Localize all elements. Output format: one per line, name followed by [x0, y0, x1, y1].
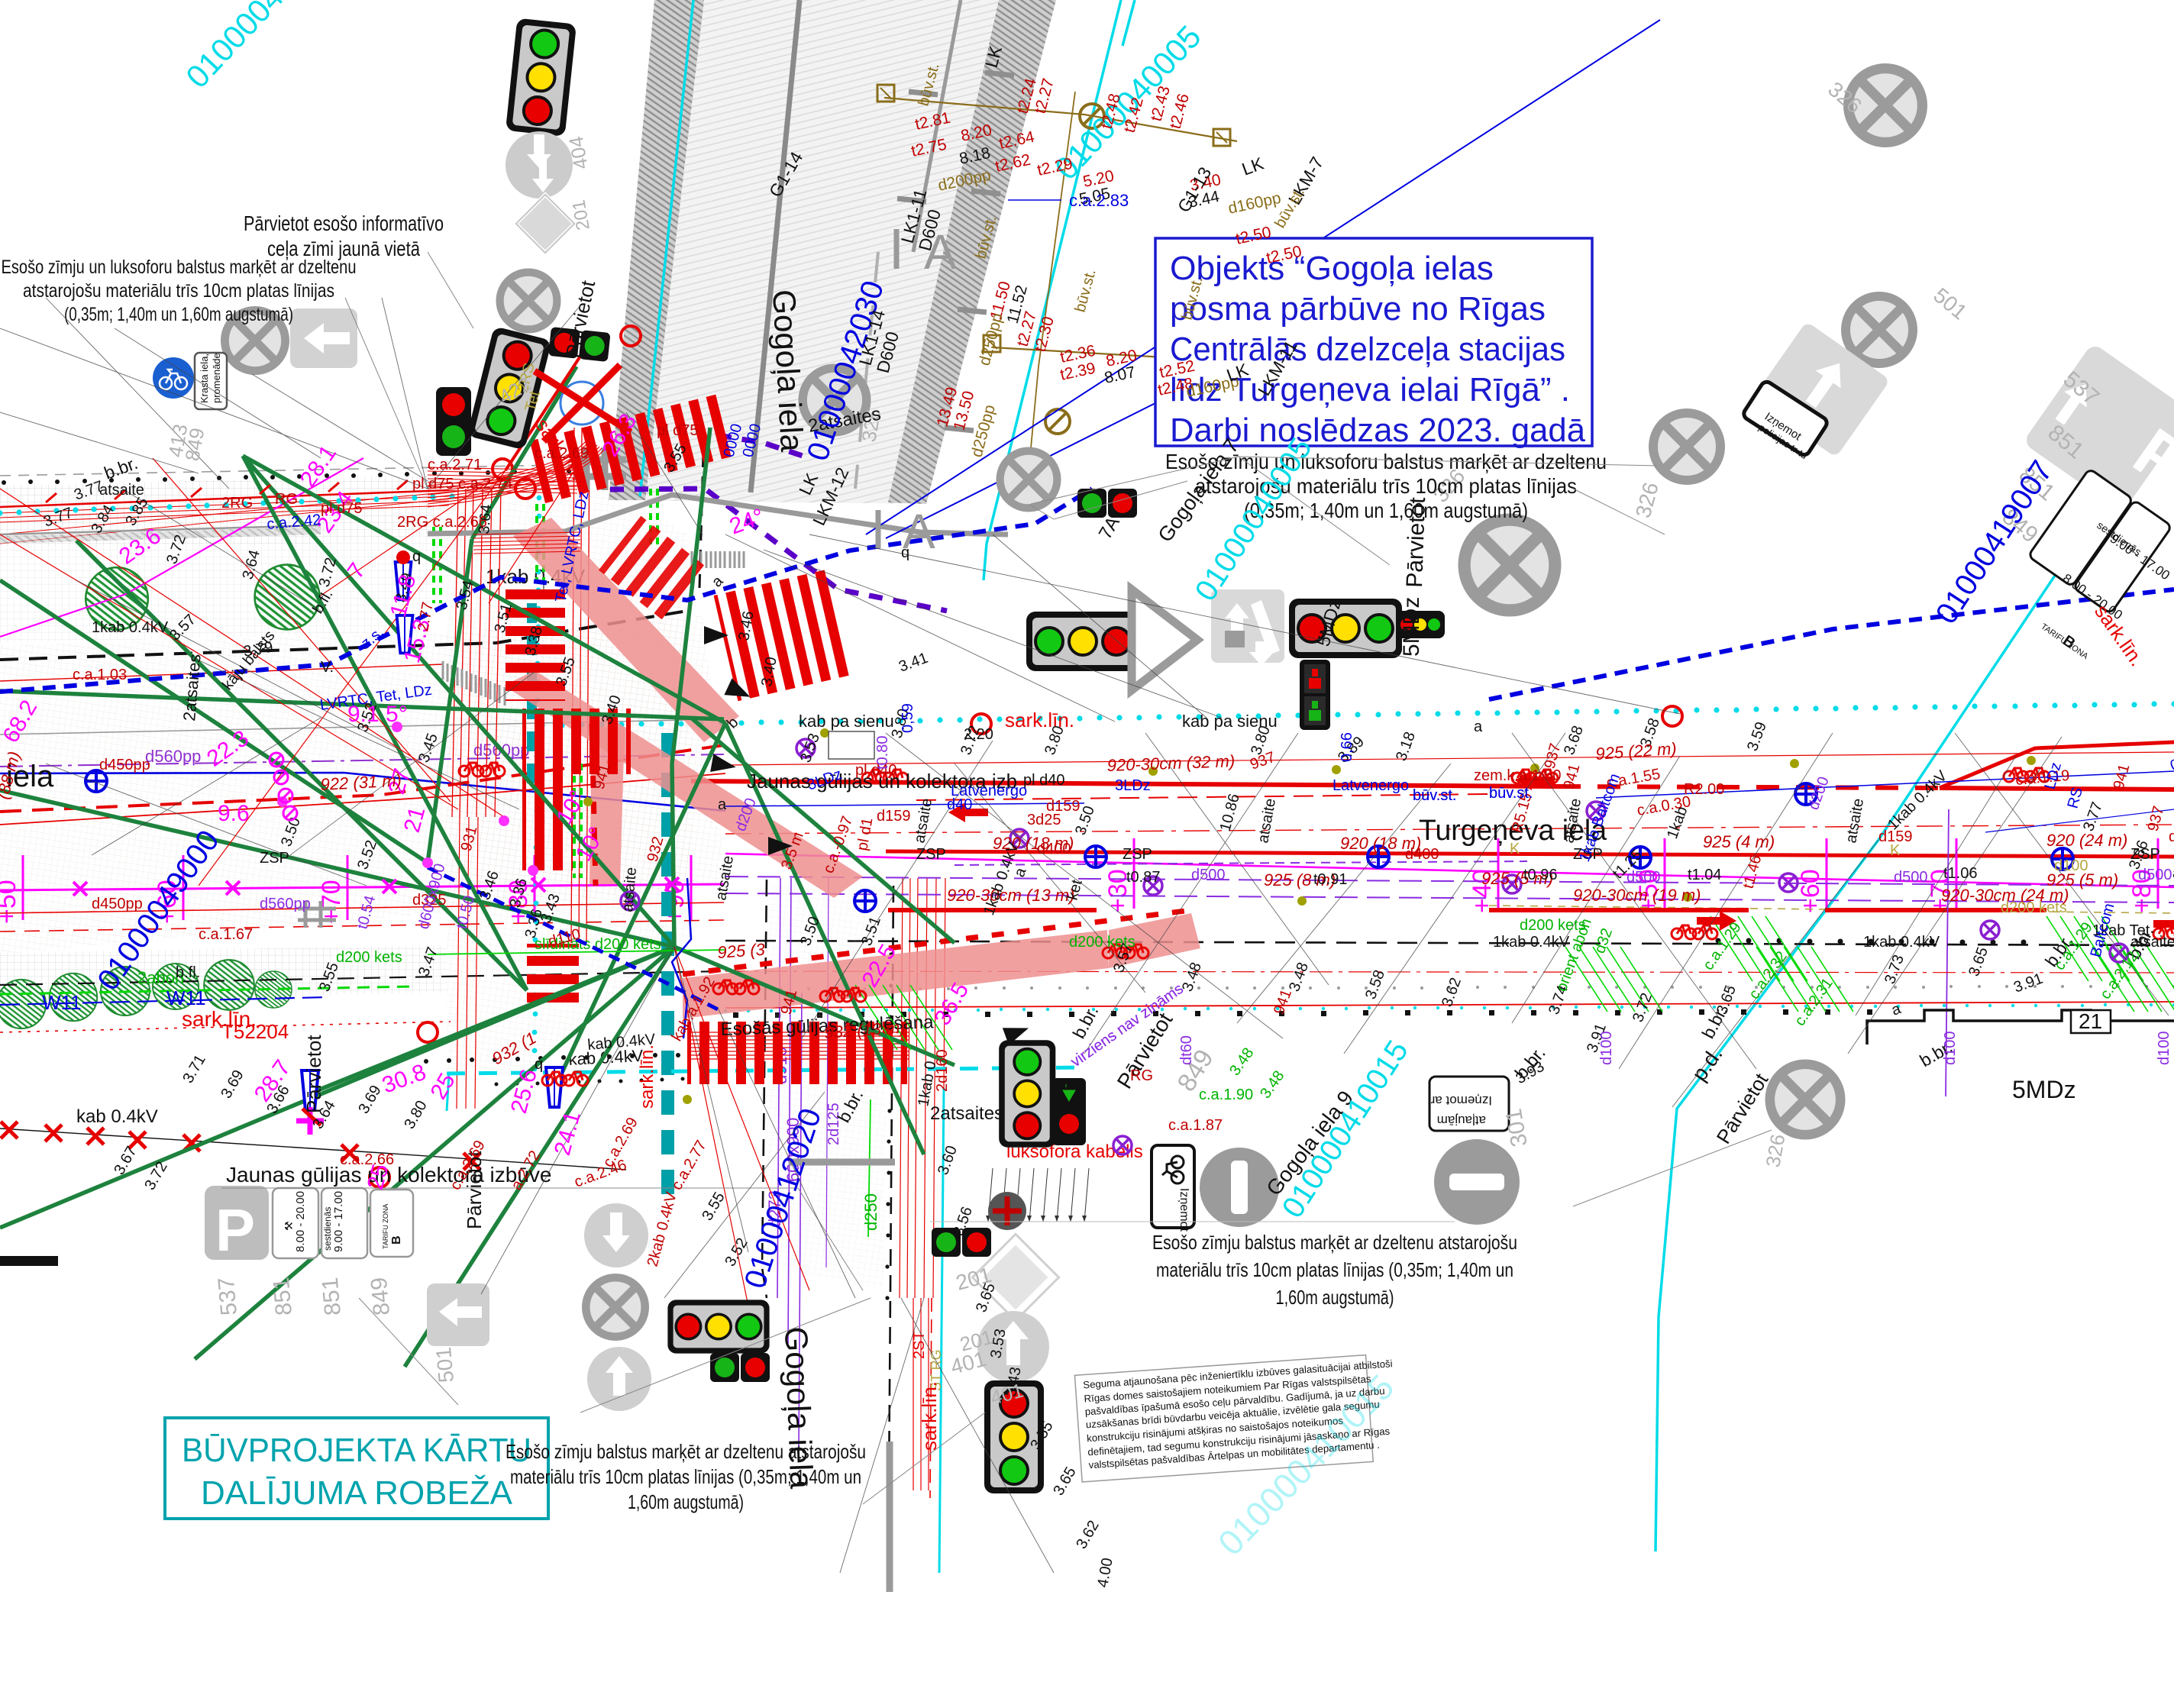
svg-text:DALĪJUMA ROBEŽA: DALĪJUMA ROBEŽA — [201, 1474, 513, 1512]
svg-text:d159: d159 — [877, 808, 911, 825]
svg-text:t1.06: t1.06 — [1943, 865, 1977, 882]
svg-text:d250: d250 — [861, 1193, 880, 1231]
svg-text:a: a — [1474, 718, 1483, 735]
svg-text:8.00 - 20.00: 8.00 - 20.00 — [294, 1191, 307, 1252]
svg-text:d500: d500 — [1894, 869, 1928, 886]
svg-text:promenāde: promenāde — [211, 353, 222, 403]
svg-text:920-30cm (19 m): 920-30cm (19 m) — [1573, 886, 1701, 905]
svg-text:sark.līn.: sark.līn. — [637, 1044, 657, 1109]
svg-text:c.a.2.83: c.a.2.83 — [1069, 191, 1129, 210]
svg-text:ZSP: ZSP — [1123, 846, 1152, 863]
svg-text:RG: RG — [1130, 1067, 1153, 1084]
svg-text:Gogoļa iela: Gogoļa iela — [778, 1326, 819, 1490]
svg-text:920 (24 m): 920 (24 m) — [2046, 831, 2127, 850]
svg-text:d450pp: d450pp — [92, 896, 143, 912]
svg-text:a: a — [718, 796, 727, 813]
svg-text:t1.04: t1.04 — [1688, 867, 1721, 883]
svg-text:c.a.1.90: c.a.1.90 — [1199, 1086, 1253, 1103]
svg-text:851: 851 — [269, 1277, 297, 1317]
svg-text:dt60: dt60 — [1178, 1035, 1195, 1065]
svg-text:Izņemot ar: Izņemot ar — [1430, 1093, 1492, 1108]
svg-text:(0,35m; 1,40m un 1,60m augstum: (0,35m; 1,40m un 1,60m augstumā) — [64, 304, 293, 325]
svg-text:sark.līn.: sark.līn. — [918, 1381, 941, 1451]
svg-text:d200 kets: d200 kets — [1069, 934, 1135, 951]
svg-text:atsaite: atsaite — [2130, 934, 2174, 951]
svg-text:T52204: T52204 — [221, 1020, 289, 1043]
svg-text:d450pp: d450pp — [99, 757, 150, 773]
svg-text:t0.80: t0.80 — [874, 736, 891, 770]
svg-text:W11: W11 — [166, 986, 206, 1009]
svg-text:920-30cm (13 m): 920-30cm (13 m) — [947, 886, 1075, 905]
svg-text:kab pa sienu: kab pa sienu — [799, 712, 894, 731]
svg-text:Pārvietot esošo informatīvo: Pārvietot esošo informatīvo — [244, 211, 444, 235]
svg-text:851: 851 — [318, 1277, 346, 1317]
svg-text:0,59: 0,59 — [900, 703, 916, 733]
svg-text:B: B — [390, 1235, 403, 1245]
svg-text:atstarojošu materiālu trīs 10c: atstarojošu materiālu trīs 10cm platas l… — [23, 280, 334, 302]
svg-text:d100: d100 — [1942, 1032, 1959, 1066]
svg-text:Esošo zīmju balstus marķēt ar: Esošo zīmju balstus marķēt ar dzeltenu a… — [1152, 1231, 1517, 1254]
svg-text:būv.st.: būv.st. — [1413, 787, 1456, 804]
svg-text:Latvenergo: Latvenergo — [951, 783, 1027, 799]
svg-text:Krasta iela,: Krasta iela, — [199, 354, 210, 403]
svg-text:c.a.2.71: c.a.2.71 — [428, 457, 482, 473]
svg-text:d100: d100 — [2054, 857, 2088, 874]
svg-text:+60: +60 — [1796, 869, 1825, 913]
svg-text:1kab 0.4kV: 1kab 0.4kV — [1493, 934, 1570, 951]
svg-text:pl d75 c.a.2.74: pl d75 c.a.2.74 — [412, 476, 512, 492]
svg-text:5MDz: 5MDz — [2012, 1076, 2076, 1103]
svg-text:d400: d400 — [1405, 846, 1439, 863]
svg-text:1,60m augstumā): 1,60m augstumā) — [1276, 1286, 1394, 1309]
svg-text:c.a.2.69: c.a.2.69 — [535, 445, 589, 462]
svg-text:3LDz: 3LDz — [1115, 777, 1151, 794]
svg-text:d500: d500 — [2138, 867, 2172, 883]
svg-text:501: 501 — [431, 1346, 458, 1384]
svg-text:c.a.1.87: c.a.1.87 — [1168, 1117, 1223, 1134]
svg-text:2RG: 2RG — [221, 495, 253, 512]
svg-text:b.fl.: b.fl. — [176, 964, 200, 981]
svg-text:d500: d500 — [1191, 867, 1226, 883]
svg-text:1,60m augstumā): 1,60m augstumā) — [628, 1490, 744, 1513]
svg-text:TARIFU ZONA: TARIFU ZONA — [382, 1204, 389, 1249]
svg-text:5MDz: 5MDz — [1399, 597, 1424, 657]
svg-text:materiālu trīs 10cm platas līn: materiālu trīs 10cm platas līnijas (0,35… — [1156, 1258, 1513, 1281]
svg-text:ZSP: ZSP — [916, 846, 946, 863]
svg-text:Centrālās dzelzceļa stacijas: Centrālās dzelzceļa stacijas — [1170, 331, 1565, 368]
svg-text:d100: d100 — [2156, 1032, 2172, 1066]
svg-text:9.00 - 17.00: 9.00 - 17.00 — [332, 1191, 345, 1252]
svg-text:RG: RG — [275, 491, 298, 508]
svg-text:P: P — [215, 1196, 255, 1264]
svg-text:Esošo zīmju un luksoforu balst: Esošo zīmju un luksoforu balstus marķēt … — [2, 257, 357, 278]
svg-text:būv.st.: būv.st. — [1489, 785, 1533, 802]
svg-text:sestdienās: sestdienās — [322, 1207, 333, 1251]
svg-text:K: K — [1890, 842, 1901, 859]
svg-text:kab 0.4kV: kab 0.4kV — [76, 1106, 158, 1127]
svg-text:pl d75: pl d75 — [657, 422, 699, 439]
svg-text:zem.k.a.1.50: zem.k.a.1.50 — [1474, 767, 1562, 784]
svg-text:21: 21 — [2079, 1009, 2102, 1033]
svg-text:BŪVPROJEKTA KĀRTU: BŪVPROJEKTA KĀRTU — [182, 1432, 531, 1469]
svg-text:t0.91: t0.91 — [1313, 871, 1347, 888]
svg-text:⚒: ⚒ — [283, 1221, 295, 1231]
svg-text:(0,35m; 1,40m un 1,60m augstum: (0,35m; 1,40m un 1,60m augstumā) — [1244, 499, 1528, 522]
svg-text:c.a.1.67: c.a.1.67 — [199, 926, 253, 943]
svg-text:d400: d400 — [1037, 841, 1071, 857]
svg-text:3d25: 3d25 — [1027, 812, 1061, 828]
svg-text:t0.96: t0.96 — [1523, 867, 1557, 883]
svg-text:q: q — [412, 548, 421, 565]
svg-text:2.20: 2.20 — [964, 726, 993, 743]
svg-text:925 (3: 925 (3 — [717, 940, 767, 962]
svg-text:q: q — [901, 544, 909, 561]
svg-text:d200 kets: d200 kets — [336, 949, 402, 966]
svg-text:t0.87: t0.87 — [1126, 869, 1160, 886]
svg-text:537: 537 — [214, 1277, 242, 1317]
svg-text:d560pp: d560pp — [260, 896, 311, 912]
svg-text:c.a.1.03: c.a.1.03 — [73, 667, 127, 683]
svg-text:atsaite: atsaite — [99, 482, 144, 499]
svg-text:Objekts “Gogoļa ielas: Objekts “Gogoļa ielas — [1170, 250, 1494, 287]
svg-text:9.6: 9.6 — [218, 801, 250, 826]
svg-text:d200 kets: d200 kets — [2001, 899, 2067, 916]
svg-text:K: K — [1510, 841, 1520, 857]
svg-text:925 (4 m): 925 (4 m) — [1703, 832, 1775, 851]
svg-text:pl d75: pl d75 — [321, 500, 363, 517]
svg-text:0,66: 0,66 — [1339, 732, 1355, 762]
svg-text:1kab 0.4kV: 1kab 0.4kV — [1863, 934, 1940, 951]
svg-text:+50: +50 — [0, 880, 21, 924]
svg-text:2RG c.a.2.66: 2RG c.a.2.66 — [397, 514, 487, 531]
svg-text:R2.00: R2.00 — [1684, 781, 1724, 798]
svg-text:d560pp: d560pp — [145, 747, 201, 766]
svg-text:V.: V. — [321, 659, 334, 676]
svg-text:ZSP: ZSP — [2130, 846, 2160, 863]
svg-text:d100: d100 — [1598, 1032, 1615, 1066]
svg-text:Izņemot: Izņemot — [1177, 1188, 1190, 1232]
svg-text:W11: W11 — [42, 991, 82, 1014]
svg-text:ZSP: ZSP — [260, 850, 289, 867]
svg-text:pl d40: pl d40 — [1023, 772, 1065, 789]
svg-text:2atsaites: 2atsaites — [930, 1103, 1003, 1124]
svg-text:atļaujām: atļaujām — [1437, 1113, 1486, 1128]
svg-text:1kab 0.4kV: 1kab 0.4kV — [92, 619, 169, 636]
svg-text:q: q — [535, 1056, 543, 1073]
svg-text:posma pārbūve no Rīgas: posma pārbūve no Rīgas — [1170, 290, 1546, 328]
svg-text:Latvenergo: Latvenergo — [1333, 777, 1409, 794]
svg-text:d500: d500 — [1626, 869, 1661, 886]
svg-text:c.a.2.66: c.a.2.66 — [340, 1151, 394, 1168]
svg-text:d1: d1 — [2169, 828, 2174, 845]
svg-text:2ST: 2ST — [911, 1331, 928, 1359]
